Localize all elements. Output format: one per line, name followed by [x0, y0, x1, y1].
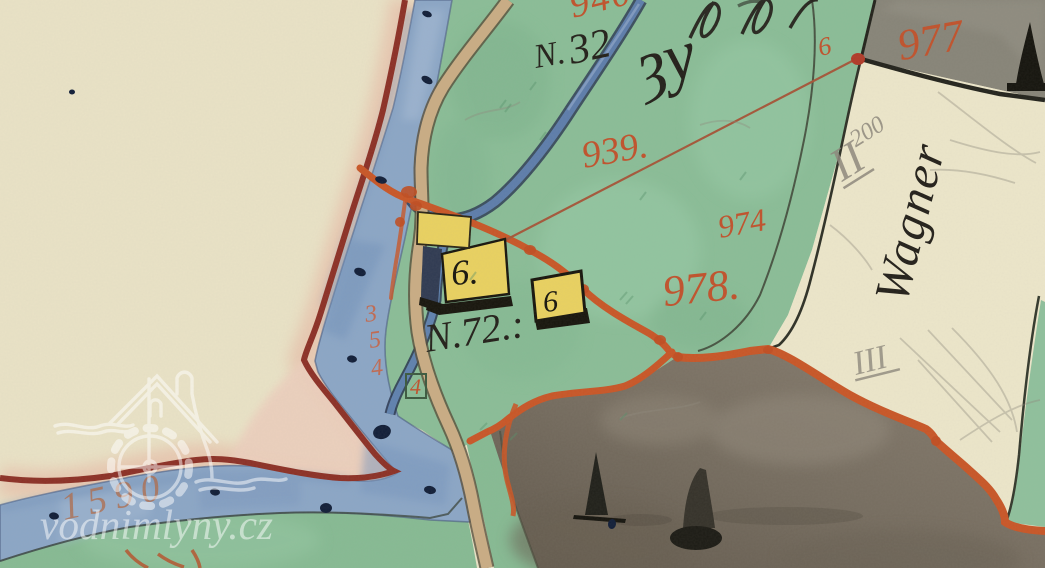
svg-text:vodnimlyny.cz: vodnimlyny.cz	[40, 503, 273, 549]
